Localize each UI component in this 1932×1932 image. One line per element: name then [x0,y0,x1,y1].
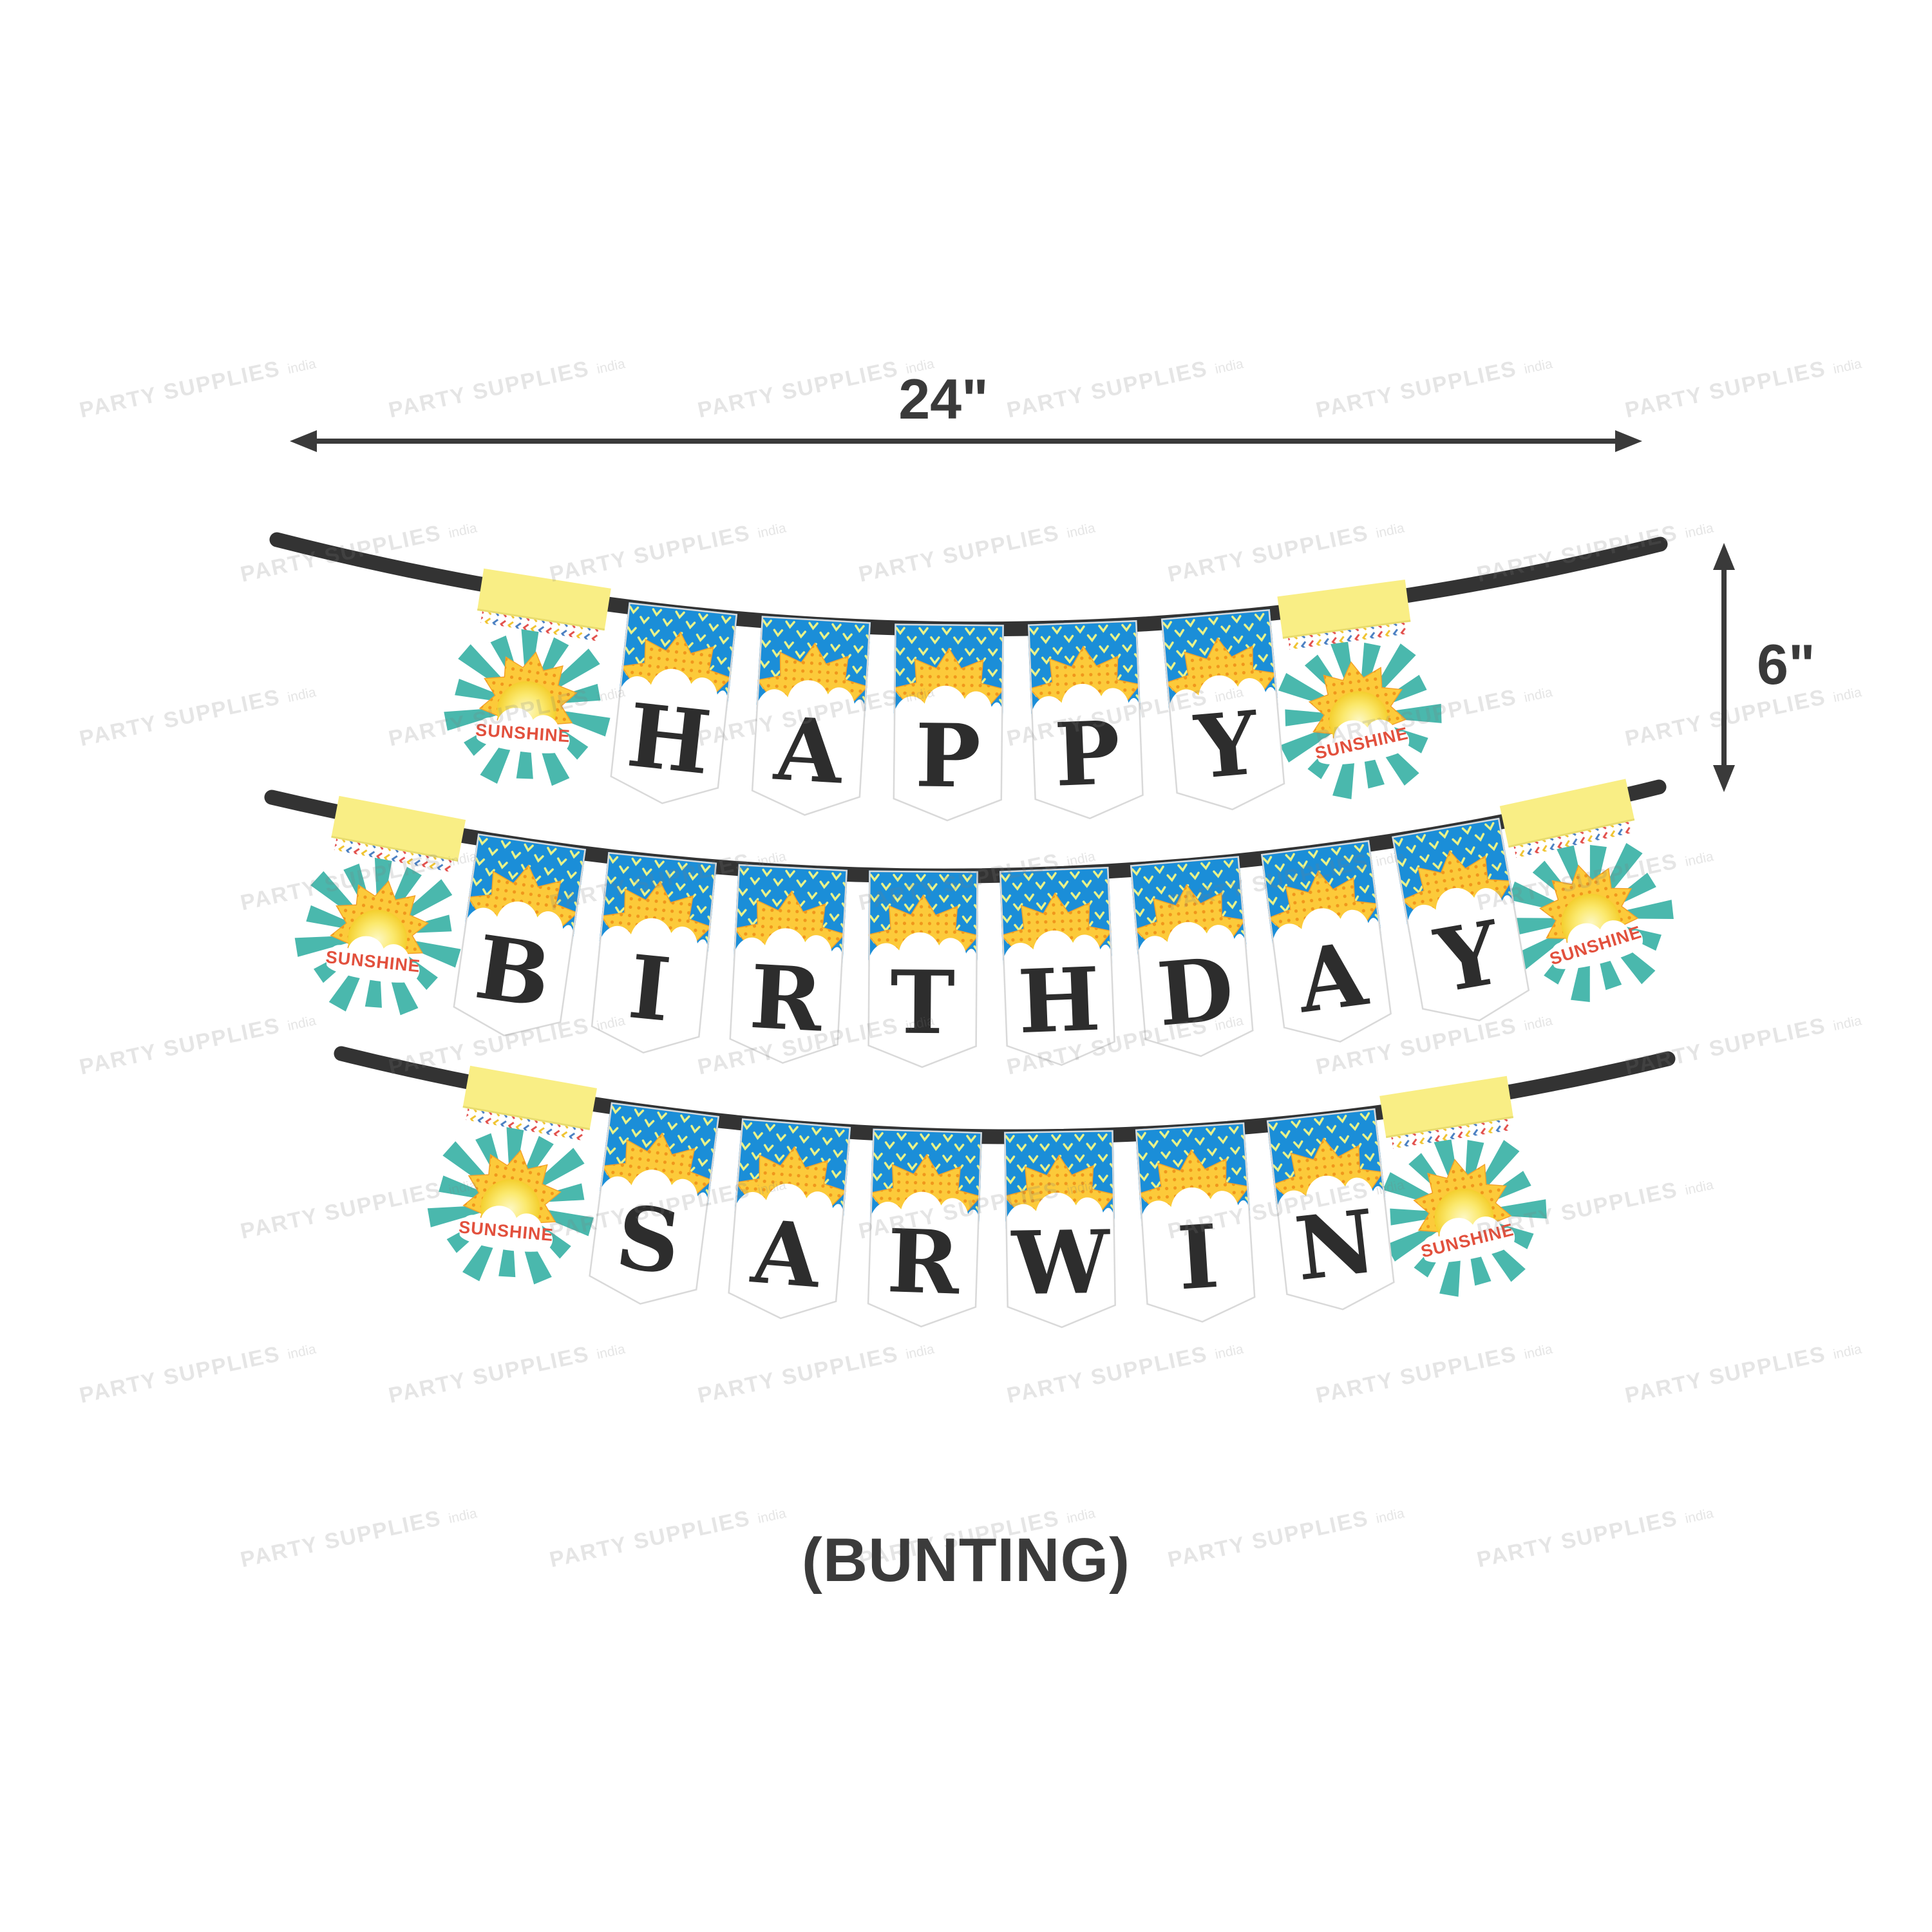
arrow-down-icon [1713,765,1735,792]
width-dimension-arrow: 24" [290,367,1642,452]
bunting-mockup-canvas: SUNSHINE SUNSHINE H [0,0,1932,1932]
dimension-annotations: 24" 6" [0,0,1932,1932]
height-dimension-arrow: 6" [1713,543,1815,792]
caption: (BUNTING) [0,1525,1932,1596]
caption-text: (BUNTING) [802,1526,1130,1595]
height-dimension-label: 6" [1757,632,1815,696]
arrow-up-icon [1713,543,1735,570]
width-dimension-label: 24" [898,367,989,431]
arrow-left-icon [290,430,317,452]
arrow-right-icon [1615,430,1642,452]
